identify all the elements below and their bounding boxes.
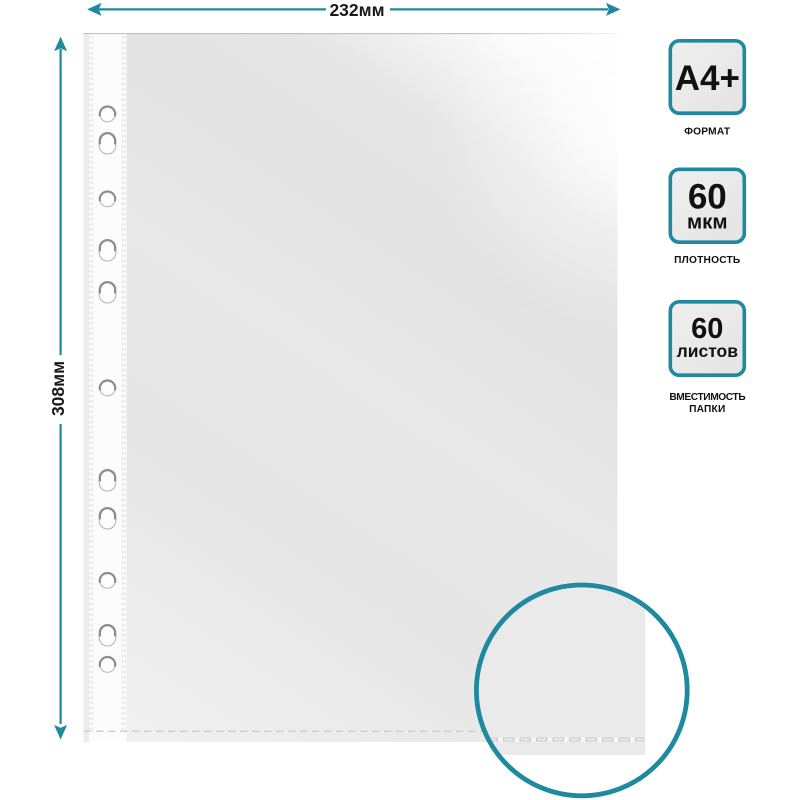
svg-text:308мм: 308мм (48, 361, 68, 416)
svg-text:листов: листов (677, 341, 739, 361)
svg-text:ФОРМАТ: ФОРМАТ (684, 126, 731, 137)
svg-text:A4+: A4+ (675, 59, 740, 98)
svg-text:мкм: мкм (687, 210, 728, 233)
svg-text:ПЛОТНОСТЬ: ПЛОТНОСТЬ (674, 255, 740, 266)
svg-text:ПАПКИ: ПАПКИ (689, 404, 725, 415)
svg-text:232мм: 232мм (329, 0, 384, 20)
svg-text:ВМЕСТИМОСТЬ: ВМЕСТИМОСТЬ (669, 392, 745, 403)
